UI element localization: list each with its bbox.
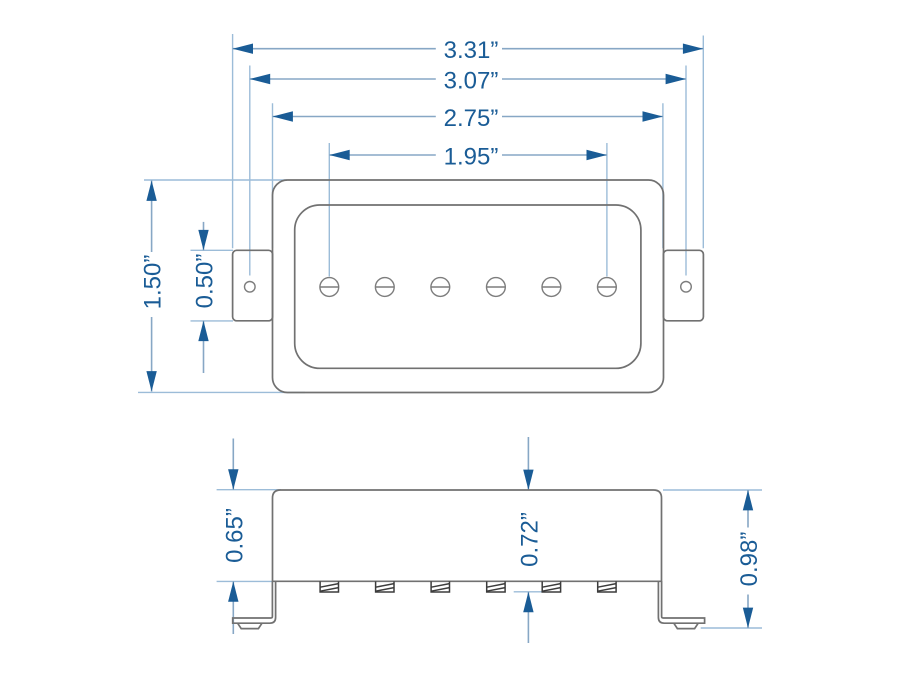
svg-text:3.31”: 3.31” <box>444 37 499 64</box>
svg-text:1.95”: 1.95” <box>444 144 499 171</box>
svg-text:0.72”: 0.72” <box>516 512 543 567</box>
svg-text:0.50”: 0.50” <box>192 254 219 309</box>
svg-text:1.50”: 1.50” <box>140 255 167 310</box>
svg-text:0.98”: 0.98” <box>736 532 763 587</box>
svg-text:0.65”: 0.65” <box>221 508 248 563</box>
svg-text:3.07”: 3.07” <box>444 68 499 95</box>
svg-text:2.75”: 2.75” <box>444 105 499 132</box>
